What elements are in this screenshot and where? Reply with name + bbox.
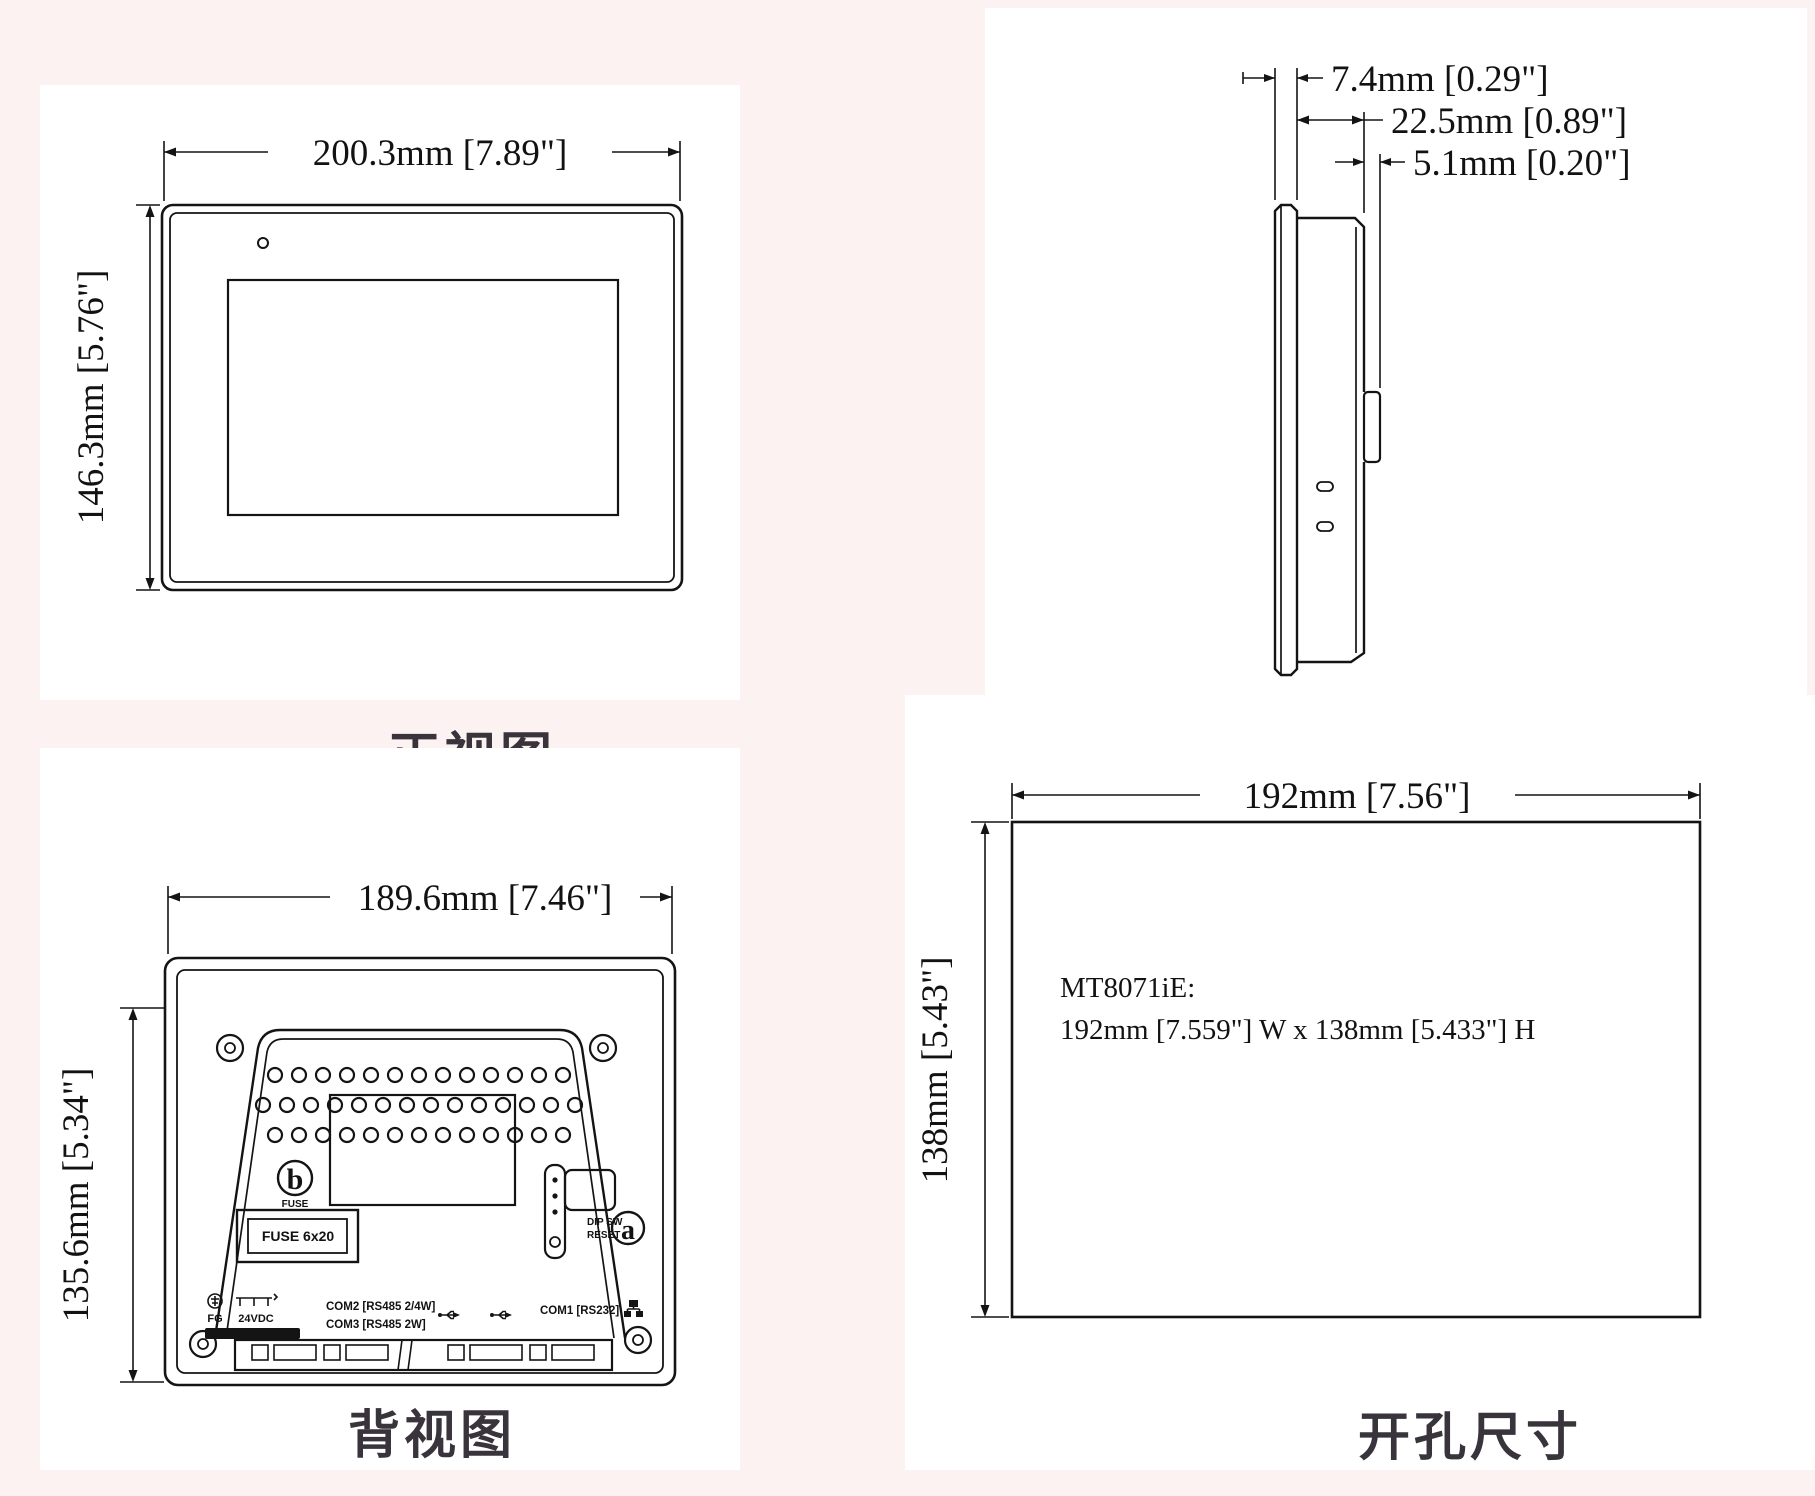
dip-sw-label: DIP SW <box>587 1217 623 1228</box>
back-width-label: 189.6mm [7.46"] <box>358 878 613 919</box>
side-dim1-label: 7.4mm [0.29"] <box>1331 59 1549 100</box>
back-view-drawing: b FUSE FUSE 6x20 DIP SW RESET a <box>40 748 740 1470</box>
dip-switch-block: DIP SW RESET a <box>545 1165 644 1258</box>
marker-b-sub-label: FUSE <box>282 1199 309 1210</box>
connector-strip <box>235 1340 612 1370</box>
cutout-width-label: 192mm [7.56"] <box>1244 776 1471 817</box>
cutout-note-line2: 192mm [7.559"] W x 138mm [5.433"] H <box>1060 1014 1535 1046</box>
power-plug <box>205 1328 300 1339</box>
front-view-panel: 200.3mm [7.89"] 146.3mm [5.76"] 正视图 <box>40 85 740 700</box>
com1-label: COM1 [RS232] <box>540 1305 619 1317</box>
cutout-height-dimension: 138mm [5.43"] <box>915 822 1009 1317</box>
cutout-view-panel: 192mm [7.56"] 138mm [5.43"] MT8071iE: 19… <box>905 695 1815 1470</box>
mounting-tab <box>1364 392 1380 462</box>
com3-label: COM3 [RS485 2W] <box>326 1319 426 1331</box>
screw-icon <box>590 1035 616 1061</box>
front-bezel-outline <box>162 205 682 590</box>
front-height-dimension: 146.3mm [5.76"] <box>71 205 160 590</box>
fuse-holder-label: FUSE 6x20 <box>262 1228 335 1244</box>
cutout-view-caption: 开孔尺寸 <box>1358 1395 1582 1470</box>
din-clip-slot <box>1317 482 1333 491</box>
power-terminal: FG 24VDC <box>205 1294 300 1339</box>
voltage-label: 24VDC <box>238 1313 274 1325</box>
usb-icon <box>438 1312 460 1319</box>
front-screen-area <box>228 280 618 515</box>
side-profile-outline <box>1275 205 1380 675</box>
cutout-rectangle <box>1012 822 1700 1317</box>
side-dim2-label: 22.5mm [0.89"] <box>1391 101 1627 142</box>
side-view-drawing: 7.4mm [0.29"] 22.5mm [0.89"] 5.1mm [0.20… <box>985 8 1807 780</box>
side-dim3-label: 5.1mm [0.20"] <box>1413 143 1631 184</box>
com2-label: COM2 [RS485 2/4W] <box>326 1301 435 1313</box>
fuse-marker: b FUSE <box>278 1161 312 1210</box>
side-depth-dimension-3: 5.1mm [0.20"] <box>1335 143 1631 388</box>
cutout-height-label: 138mm [5.43"] <box>915 957 956 1184</box>
front-width-dimension: 200.3mm [7.89"] <box>164 133 680 201</box>
din-clip-slot <box>1317 522 1333 531</box>
front-view-drawing: 200.3mm [7.89"] 146.3mm [5.76"] <box>40 85 740 700</box>
cutout-note: MT8071iE: 192mm [7.559"] W x 138mm [5.43… <box>1060 972 1535 1046</box>
marker-a-label: a <box>621 1215 635 1246</box>
cutout-drawing: 192mm [7.56"] 138mm [5.43"] MT8071iE: 19… <box>905 695 1815 1470</box>
power-led-icon <box>258 238 268 248</box>
screw-icon <box>625 1327 651 1353</box>
front-height-label: 146.3mm [5.76"] <box>71 270 112 525</box>
screw-icon <box>217 1035 243 1061</box>
side-view-panel: 7.4mm [0.29"] 22.5mm [0.89"] 5.1mm [0.20… <box>985 8 1807 780</box>
cutout-width-dimension: 192mm [7.56"] <box>1012 776 1700 819</box>
back-view-panel: b FUSE FUSE 6x20 DIP SW RESET a <box>40 748 740 1470</box>
back-height-label: 135.6mm [5.34"] <box>56 1068 97 1323</box>
dimension-drawing-page: { "page": { "background_color": "#fcf2f1… <box>0 0 1815 1496</box>
cutout-note-line1: MT8071iE: <box>1060 972 1195 1004</box>
usb-icon <box>490 1312 512 1319</box>
back-width-dimension: 189.6mm [7.46"] <box>168 878 672 954</box>
marker-b-label: b <box>287 1163 304 1196</box>
fg-label: FG <box>207 1313 222 1325</box>
ethernet-icon <box>624 1300 643 1317</box>
rear-recess-outline <box>215 1030 625 1338</box>
front-width-label: 200.3mm [7.89"] <box>313 133 568 174</box>
connector-cutouts <box>252 1340 594 1370</box>
fuse-holder: FUSE 6x20 <box>237 1210 358 1262</box>
vent-holes <box>256 1068 582 1142</box>
port-labels: COM2 [RS485 2/4W] COM3 [RS485 2W] COM1 [… <box>326 1300 643 1331</box>
back-height-dimension: 135.6mm [5.34"] <box>56 1008 164 1382</box>
back-view-caption: 背视图 <box>348 1393 516 1468</box>
